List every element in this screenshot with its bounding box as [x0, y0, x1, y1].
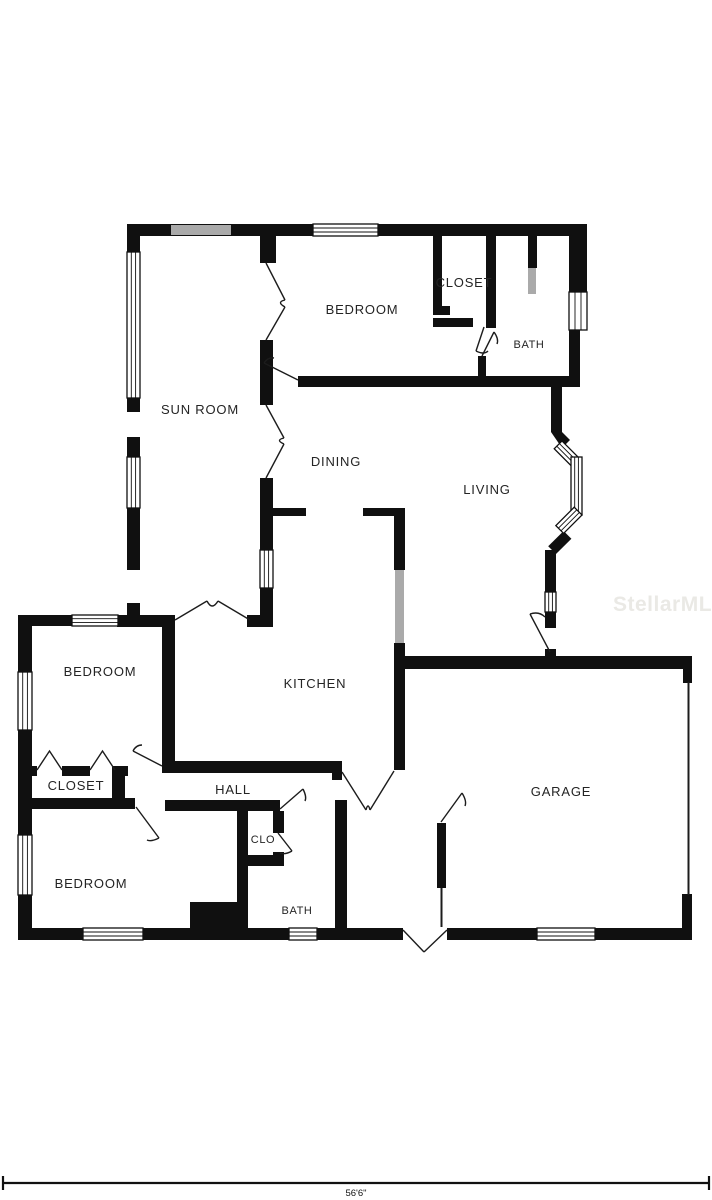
- garage-door-opening: [403, 927, 447, 941]
- window: [537, 928, 595, 940]
- room-label-living: LIVING: [463, 482, 510, 497]
- window: [127, 457, 140, 508]
- room-label-bedroom-bottom: BEDROOM: [55, 876, 128, 891]
- door-swing: [278, 833, 292, 854]
- bifold-door: [37, 751, 62, 770]
- window: [72, 615, 118, 626]
- door-swing: [136, 807, 159, 841]
- door-swing: [266, 263, 285, 340]
- room-label-bedroom-mid: BEDROOM: [64, 664, 137, 679]
- door-swing: [266, 405, 284, 478]
- watermark: StellarMLS: [613, 593, 712, 616]
- room-label-clo: CLO: [251, 834, 275, 846]
- window: [127, 252, 140, 398]
- window: [545, 592, 556, 612]
- bifold-door: [90, 751, 115, 770]
- bath-divider-gray: [528, 268, 536, 294]
- room-label-bedroom-top: BEDROOM: [326, 302, 399, 317]
- kitchen-divider-gray: [395, 570, 404, 643]
- floor-plan-canvas: SUN ROOM BEDROOM CLOSET BATH DINING LIVI…: [0, 0, 712, 1200]
- room-label-closet-mid: CLOSET: [48, 778, 105, 793]
- floor-plan-page: SUN ROOM BEDROOM CLOSET BATH DINING LIVI…: [0, 0, 712, 1200]
- window: [18, 835, 32, 895]
- room-label-dining: DINING: [311, 454, 361, 469]
- room-label-kitchen: KITCHEN: [284, 676, 347, 691]
- door-swing: [175, 601, 250, 620]
- window: [18, 672, 32, 730]
- room-label-bath-top: BATH: [514, 339, 545, 351]
- room-label-garage: GARAGE: [531, 784, 591, 799]
- window: [260, 550, 273, 588]
- windows-group: [18, 224, 595, 940]
- room-label-hall: HALL: [215, 782, 251, 797]
- room-label-bath-bottom: BATH: [282, 905, 313, 917]
- bay-window: [571, 457, 582, 515]
- door-swing: [441, 793, 466, 822]
- door-swing: [133, 745, 162, 766]
- window: [313, 224, 378, 236]
- bay-window: [556, 507, 582, 533]
- door-swing: [342, 771, 394, 810]
- dimension-label: 56'6": [345, 1188, 366, 1199]
- doors-group: [37, 263, 550, 952]
- walls-group: [18, 224, 692, 940]
- room-label-closet-top: CLOSET: [436, 275, 493, 290]
- gray-window-top: [171, 225, 231, 235]
- dimension-group: 56'6": [3, 1176, 709, 1199]
- room-label-sun-room: SUN ROOM: [161, 402, 239, 417]
- window: [83, 928, 143, 940]
- window: [289, 928, 317, 940]
- thin-walls-group: [442, 682, 689, 929]
- window: [569, 292, 587, 330]
- door-swing: [280, 789, 306, 809]
- door-swing: [482, 332, 498, 356]
